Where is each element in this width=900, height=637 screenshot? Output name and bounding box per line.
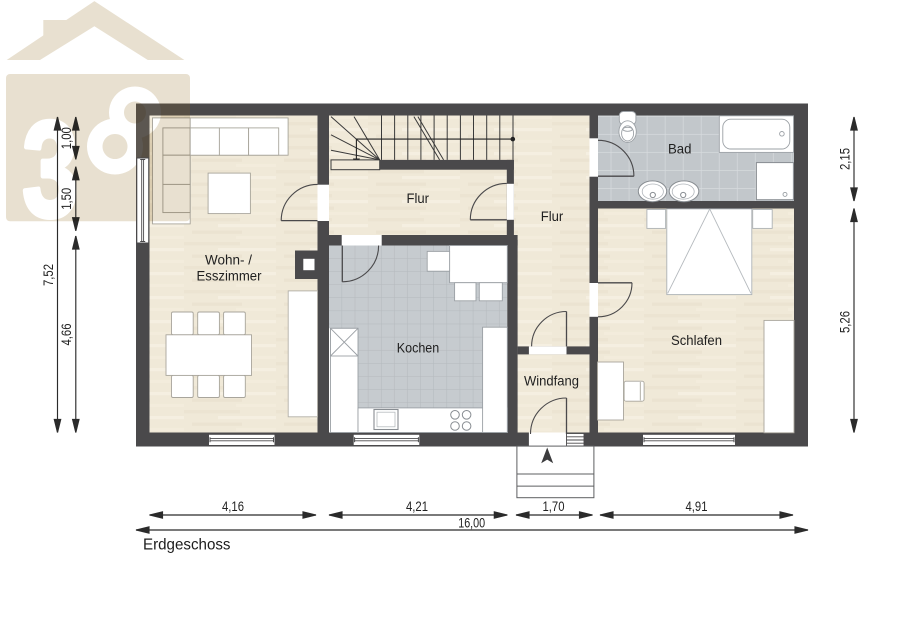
svg-text:4,21: 4,21 (406, 499, 428, 514)
svg-text:2,15: 2,15 (838, 148, 853, 170)
svg-text:Kochen: Kochen (397, 340, 440, 356)
svg-text:1,70: 1,70 (543, 499, 565, 514)
svg-text:16,00: 16,00 (458, 515, 485, 530)
svg-text:3: 3 (22, 94, 78, 245)
svg-text:5,26: 5,26 (838, 311, 853, 333)
svg-text:Flur: Flur (407, 190, 430, 206)
svg-text:Wohn- /: Wohn- / (205, 253, 252, 268)
svg-text:Esszimmer: Esszimmer (197, 269, 262, 284)
svg-text:Bad: Bad (668, 141, 692, 157)
svg-text:7,52: 7,52 (41, 264, 56, 286)
svg-text:Schlafen: Schlafen (671, 332, 722, 348)
svg-text:4,66: 4,66 (59, 324, 74, 346)
svg-text:Windfang: Windfang (524, 373, 579, 389)
svg-text:Flur: Flur (541, 208, 564, 224)
svg-text:Erdgeschoss: Erdgeschoss (143, 537, 231, 554)
svg-text:4,91: 4,91 (686, 499, 708, 514)
svg-text:4,16: 4,16 (222, 499, 244, 514)
